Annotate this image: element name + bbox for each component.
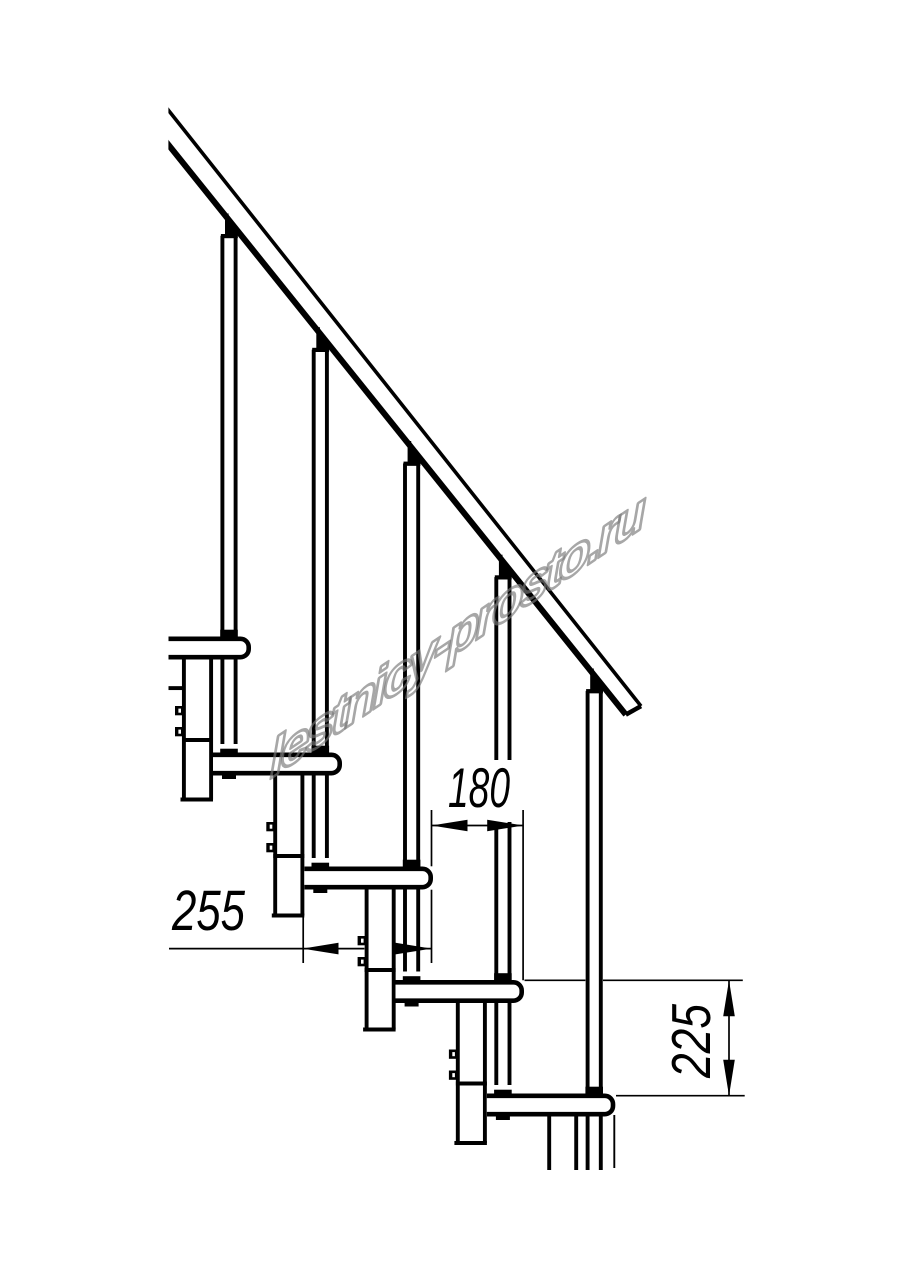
svg-text:225: 225 bbox=[660, 1004, 722, 1079]
svg-text:255: 255 bbox=[171, 879, 245, 943]
svg-text:180: 180 bbox=[448, 756, 510, 819]
